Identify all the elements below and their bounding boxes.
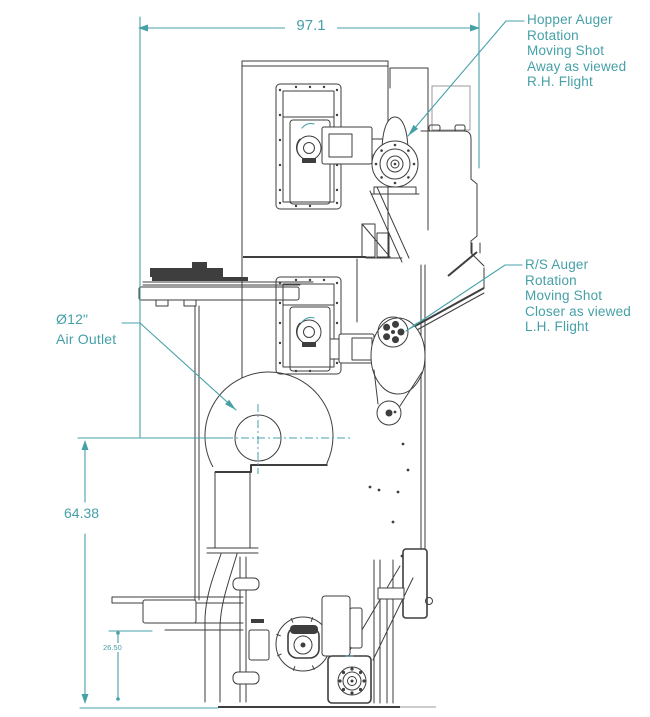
callout-line: Rotation (525, 273, 631, 289)
callout-line: Moving Shot (527, 43, 626, 59)
callout-line: Closer as viewed (525, 304, 631, 320)
callout-line: Moving Shot (525, 288, 631, 304)
panel-bolts (369, 411, 410, 558)
upper-auger-motor (297, 136, 321, 160)
callout-line: Ø12" (56, 309, 116, 329)
rs-gearbox (330, 334, 374, 363)
callout-line: L.H. Flight (525, 319, 631, 335)
callout-line: R.H. Flight (527, 74, 626, 90)
hopper (421, 125, 484, 276)
callout-line: Hopper Auger (527, 12, 626, 28)
hopper-auger-callout: Hopper Auger Rotation Moving Shot Away a… (527, 12, 626, 90)
dim-base-line (109, 631, 152, 700)
callout-line: Air Outlet (56, 329, 116, 349)
outlet-duct (215, 472, 250, 548)
machine-line-drawing (0, 0, 650, 717)
dim-base-label: 26.50 (102, 643, 123, 652)
technical-drawing-canvas: 97.1 Hopper Auger Rotation Moving Shot A… (0, 0, 650, 717)
right-foot-bracket (403, 549, 427, 618)
rs-auger-motor (297, 320, 321, 344)
callout-line: Rotation (527, 28, 626, 44)
bottom-drive-assembly (322, 596, 371, 703)
junction-box (249, 619, 269, 660)
callout-line: Away as viewed (527, 59, 626, 75)
flex-hose (205, 554, 221, 702)
rs-auger-callout: R/S Auger Rotation Moving Shot Closer as… (525, 257, 631, 335)
dim-height-label: 64.38 (62, 505, 101, 521)
callout-line: R/S Auger (525, 257, 631, 273)
inclined-shelf (406, 288, 484, 331)
dim-width-label: 97.1 (285, 17, 337, 34)
upper-right-housing (432, 86, 470, 130)
hopper-leader (408, 21, 524, 136)
belt-guard (371, 317, 425, 425)
platform-legs (195, 306, 199, 600)
air-outlet-callout: Ø12" Air Outlet (56, 309, 116, 349)
